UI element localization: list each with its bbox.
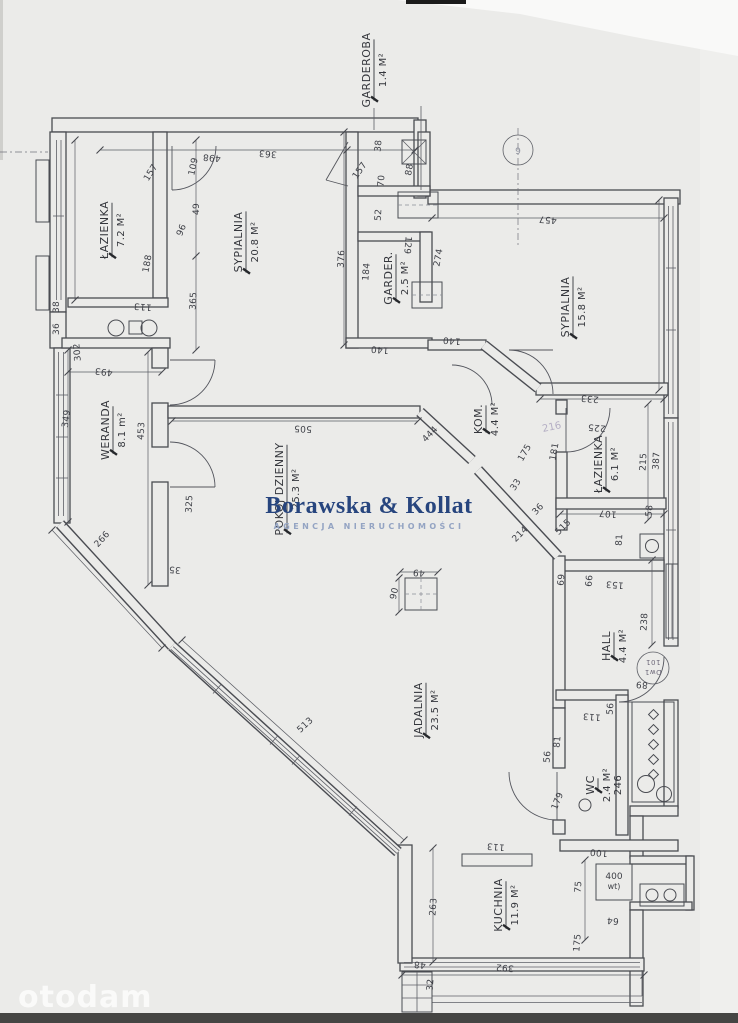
dimension-label: 32 [426,978,437,991]
boiler-label-top: 400 [605,872,622,882]
portal-watermark: otodam [18,980,153,1015]
scan-left-edge [0,0,3,160]
svg-text:23.5 M²: 23.5 M² [430,690,441,731]
dimension-label: 38 [52,301,62,313]
agency-watermark-subtitle: AGENCJA NIERUCHOMOŚCI [274,520,465,531]
dimension-label: 69 [557,573,568,586]
svg-text:20.8 M²: 20.8 M² [250,222,261,263]
dimension-label: 184 [361,262,373,281]
scan-black-bar [406,0,466,4]
dimension-label: 81 [615,534,626,547]
dimension-label: 36 [52,323,62,335]
svg-text:WC: WC [584,775,597,795]
dimension-label: 88 [404,163,416,177]
dimension-label: 70 [377,174,388,187]
dimension-label: 56 [543,750,554,763]
door-stamp-code: Dw1 [644,668,661,676]
dimension-label: 225 [587,421,606,433]
svg-text:ŁAZIENKA: ŁAZIENKA [98,201,111,260]
svg-text:4.4 M²: 4.4 M² [618,629,629,663]
dimension-label: 140 [370,343,389,355]
dimension-label: 48 [413,958,426,969]
dimension-label: 113 [486,840,505,852]
door-stamp-number: 101 [646,658,661,666]
svg-text:4.4 M²: 4.4 M² [490,402,501,436]
dimension-label: 140 [442,334,461,346]
agency-watermark: Borawska & Kollat [265,493,472,519]
scanned-floorplan-page: 9 Dw1 101 400 wt) 216 498363302157109499… [0,0,738,1023]
svg-text:KUCHNIA: KUCHNIA [492,878,505,931]
svg-text:2.4 M²: 2.4 M² [602,768,613,802]
dimension-label: 129 [401,236,413,255]
svg-text:11.9 M²: 11.9 M² [510,885,521,926]
dimension-label: 113 [582,710,601,722]
grid-marker-number: 9 [515,147,521,157]
dimension-label: 376 [337,250,348,269]
dimension-label: 100 [589,846,608,858]
dimension-label: 107 [598,507,617,519]
dimension-label: 365 [189,292,200,311]
dimension-label: 75 [574,880,585,893]
boiler-label-bottom: wt) [608,882,621,891]
svg-text:15.8 M²: 15.8 M² [577,287,588,328]
dimension-label: 35 [168,563,181,574]
svg-text:ŁAZIENKA: ŁAZIENKA [592,435,605,494]
dimension-label: 153 [605,578,624,590]
svg-text:8.1 m²: 8.1 m² [117,412,128,447]
dimension-label: 64 [606,914,619,925]
svg-text:SYPIALNIA: SYPIALNIA [232,212,245,273]
dimension-label: 505 [294,423,312,434]
dimension-label: 113 [133,300,152,312]
dimension-label: 175 [572,933,584,952]
floorplan-drawing: 9 Dw1 101 400 wt) 216 498363302157109499… [0,0,738,1023]
dimension-label: 58 [645,504,656,517]
dimension-label: 493 [94,365,113,377]
svg-text:JADALNIA: JADALNIA [412,682,425,739]
dimension-label: 49 [192,203,202,215]
page-right-edge [700,40,738,1023]
svg-text:GARDER.: GARDER. [382,251,395,304]
dimension-label: 453 [137,422,148,441]
svg-text:246: 246 [613,775,624,795]
dimension-label: 302 [72,343,84,362]
dimension-label: 263 [428,897,439,916]
dimension-label: 392 [495,961,514,973]
dimension-label: 457 [538,213,557,225]
dimension-label: 387 [652,452,663,471]
svg-text:7.2 M²: 7.2 M² [116,213,127,247]
dimension-label: 363 [258,147,277,159]
dimension-label: 238 [640,613,651,632]
svg-text:GARDEROBA: GARDEROBA [360,33,373,108]
dimension-label: 89 [635,678,648,689]
dimension-label: 56 [606,702,617,715]
dimension-label: 49 [412,566,425,577]
dimension-label: 325 [185,495,196,514]
dimension-label: 233 [580,392,599,404]
dimension-label: 38 [374,139,385,152]
dimension-label: 215 [639,453,650,472]
dimension-label: 498 [202,151,221,163]
svg-text:SYPIALNIA: SYPIALNIA [559,277,572,338]
dimension-label: 66 [585,574,596,587]
dimension-label: 52 [374,208,385,221]
svg-text:2.5 M²: 2.5 M² [400,261,411,295]
svg-text:1.4 M²: 1.4 M² [378,53,389,87]
svg-text:6.1 M²: 6.1 M² [610,447,621,481]
dimension-label: 81 [553,735,564,748]
